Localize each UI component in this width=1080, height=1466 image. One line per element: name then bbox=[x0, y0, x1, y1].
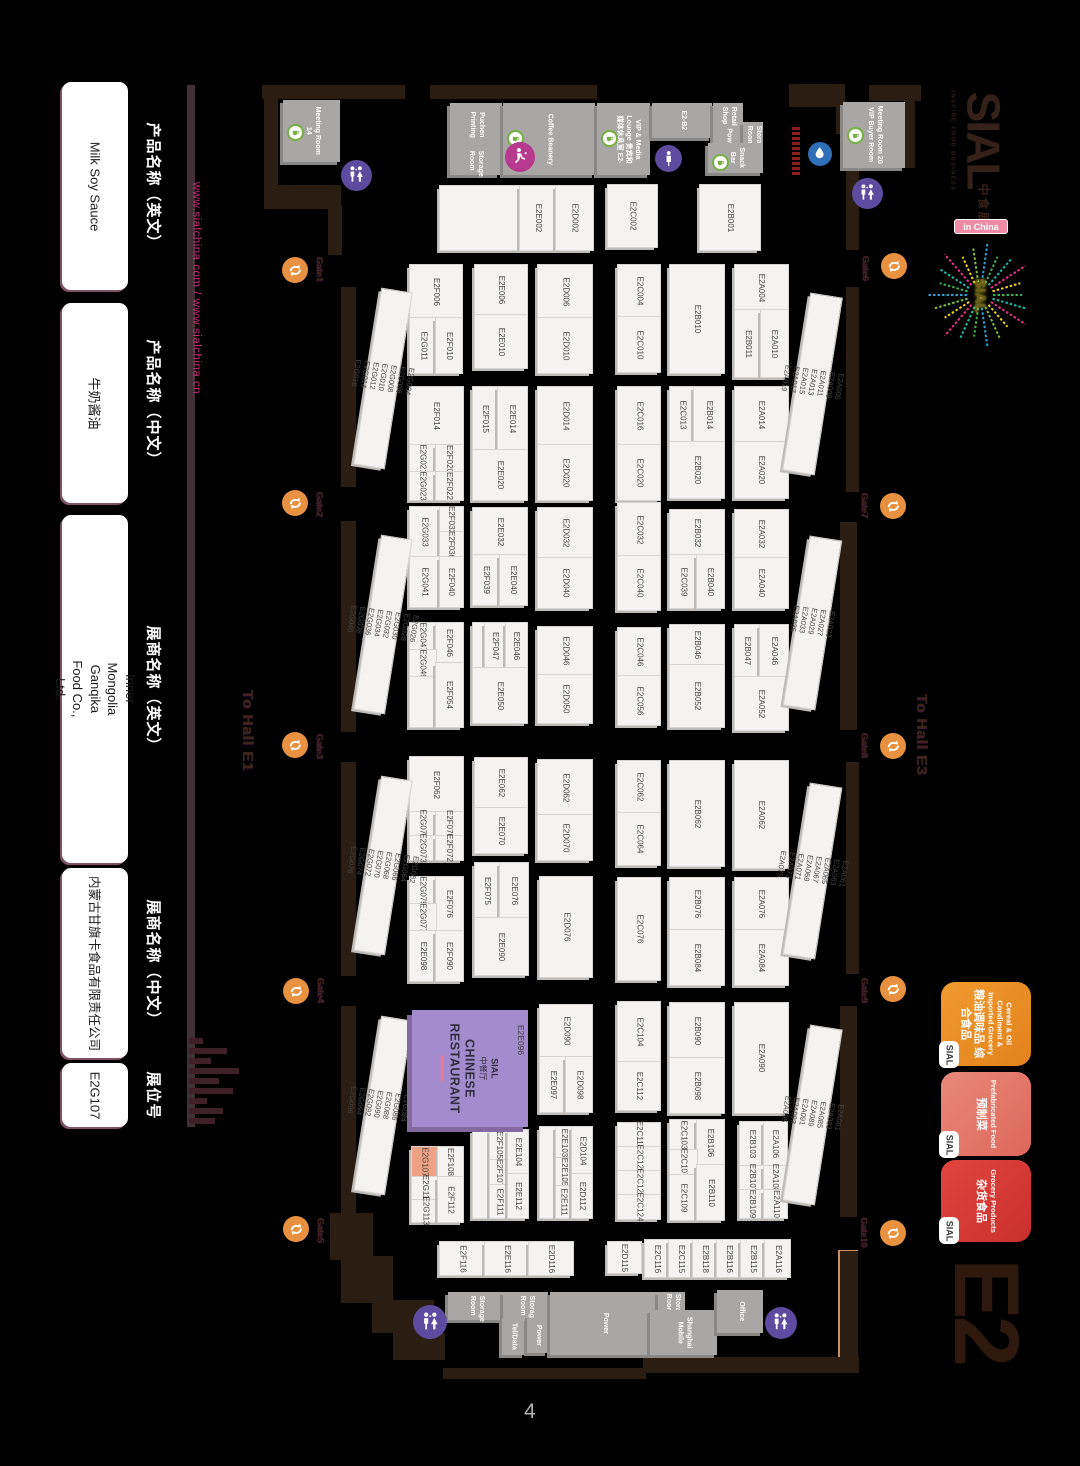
sial-cn-name: 中食展 bbox=[960, 188, 1008, 220]
badge-en-label: Prefabricated Food bbox=[989, 1080, 998, 1148]
room-storage-room: Storage Room bbox=[450, 147, 500, 175]
wall-segment bbox=[262, 85, 405, 99]
booth-unlabeled bbox=[440, 186, 520, 250]
booth-E2D062: E2D062 bbox=[538, 760, 592, 815]
to-hall-e3-sign: To Hall E3 bbox=[908, 672, 936, 797]
product-name-cn-card: 牛奶酱油 bbox=[62, 303, 128, 503]
sial-corner-tag: SIAL bbox=[939, 1041, 959, 1068]
booth-E2B098: E2B098 bbox=[670, 1058, 724, 1113]
amenity-icon bbox=[712, 154, 729, 171]
booth-E2B020: E2B020 bbox=[670, 442, 724, 498]
booth-E2D115: E2D115 bbox=[608, 1242, 641, 1273]
booth-E2D006: E2D006 bbox=[538, 265, 592, 318]
badge-en-label: Cereal & Oil Condiment & Imported Grocer… bbox=[987, 984, 1014, 1064]
booth-E2E032: E2E032 bbox=[473, 508, 527, 555]
gate-label-gate10: Gate10 bbox=[857, 1210, 871, 1254]
booth-E2F039: E2F039 bbox=[473, 555, 500, 605]
booth-E2C039: E2C039 bbox=[670, 555, 697, 608]
booth-E2D010: E2D010 bbox=[538, 318, 592, 373]
gate-icon bbox=[283, 1216, 309, 1242]
gate-label-gate3: Gate3 bbox=[312, 724, 326, 768]
booth-E2C116: E2C116 bbox=[645, 1240, 669, 1277]
room-power: Power bbox=[550, 1292, 658, 1355]
booth-E2G113: E2G113 bbox=[412, 1200, 438, 1222]
booth-strip: E2G082 E2G084 E2G086 E2G088 E2G090 E2G09… bbox=[354, 1017, 411, 1195]
booth-E2D098: E2D098 bbox=[566, 1057, 592, 1112]
wall-segment bbox=[905, 100, 915, 168]
room-tel/data: Tel/Data bbox=[502, 1318, 525, 1355]
booth-E2B010: E2B010 bbox=[670, 265, 724, 373]
wall-segment bbox=[328, 205, 342, 255]
booth-E2B040: E2B040 bbox=[697, 555, 724, 608]
booth-E2E090: E2E090 bbox=[475, 918, 528, 975]
room-shanghai-mobile: Shanghai Mobile bbox=[650, 1310, 717, 1355]
booth-number-card: E2G107 bbox=[62, 1063, 128, 1127]
badge-cn-label: 粮油调味品 综合食品 bbox=[958, 984, 984, 1064]
restroom-icon bbox=[765, 1307, 797, 1339]
booth-E2B109: E2B109 bbox=[740, 1190, 764, 1218]
booth-E2F107: E2F107 bbox=[490, 1160, 508, 1185]
gate-label-gate9: Gate9 bbox=[857, 968, 871, 1012]
restaurant-sial-label: SIAL bbox=[490, 1058, 500, 1079]
room-retail-shop: Retail Shop bbox=[713, 103, 743, 127]
booth-E2C107: E2C107 bbox=[670, 1150, 697, 1175]
booth-E2G011: E2G011 bbox=[410, 318, 436, 373]
booth-E2F006: E2F006 bbox=[410, 265, 462, 318]
booth-E2C118: E2C118 bbox=[618, 1123, 660, 1147]
booth-E2F022: E2F022 bbox=[436, 472, 463, 500]
restaurant-booth: E2E096 SIAL 中餐厅 CHINESE RESTAURANT bbox=[412, 1010, 528, 1127]
product-name-en-card: Milk Soy Sauce bbox=[62, 82, 128, 290]
room-storage-room: Storage Room bbox=[503, 1292, 548, 1318]
booth-E2C020: E2C020 bbox=[618, 445, 660, 500]
booth-E2E111: E2E111 bbox=[556, 1186, 572, 1218]
booth-E2A084: E2A084 bbox=[735, 930, 788, 985]
booth-E2D020: E2D020 bbox=[538, 445, 592, 500]
booth-E2C004: E2C004 bbox=[618, 265, 660, 317]
booth-E2C076: E2C076 bbox=[618, 878, 660, 980]
category-badge-grocery-products: Grocery Products 杂货食品 SIAL bbox=[941, 1160, 1031, 1242]
gate-icon bbox=[880, 1220, 906, 1246]
restroom-icon bbox=[852, 178, 883, 209]
booth-E2D076: E2D076 bbox=[540, 877, 592, 977]
booth-E2C120: E2C120 bbox=[618, 1147, 660, 1171]
booth-strip: E2G026 E2G028 E2G030 E2G032 E2G034 E2G03… bbox=[354, 536, 411, 714]
restaurant-name-line2: RESTAURANT bbox=[448, 1023, 462, 1113]
booth-E2F112: E2F112 bbox=[438, 1177, 463, 1222]
red-annotation-mark bbox=[792, 127, 800, 175]
pink-dash bbox=[441, 1056, 444, 1082]
booth-number-header: 展位号 bbox=[130, 1063, 178, 1127]
wall-segment bbox=[430, 85, 597, 99]
room-e2-b2: E2-B2 bbox=[652, 103, 712, 138]
booth-E2G077: E2G077 bbox=[410, 904, 436, 931]
booth-E2E103: E2E103 bbox=[556, 1127, 572, 1158]
booth-E2F108: E2F108 bbox=[438, 1147, 463, 1177]
booth-E2A032: E2A032 bbox=[735, 510, 788, 558]
to-hall-e1-sign: To Hall E1 bbox=[233, 668, 263, 793]
booth-E2A076: E2A076 bbox=[735, 878, 788, 930]
gate-label-gate5: Gate5 bbox=[313, 1208, 327, 1252]
booth-E2E006: E2E006 bbox=[475, 265, 527, 315]
restroom-icon bbox=[413, 1305, 447, 1339]
wall-segment bbox=[643, 1357, 859, 1373]
booth-E2F020: E2F020 bbox=[436, 445, 463, 472]
booth-E2E105: E2E105 bbox=[556, 1158, 572, 1186]
wall-segment bbox=[443, 1368, 646, 1379]
website-url: www.sialchina.com / www.sialchina.cn bbox=[186, 88, 206, 488]
booth-E2G041: E2G041 bbox=[410, 557, 440, 607]
wall-segment bbox=[264, 99, 278, 195]
booth-E2F032: E2F032 bbox=[440, 507, 463, 532]
gate-label-gate1: Gate1 bbox=[312, 247, 326, 291]
gate-icon bbox=[880, 733, 906, 759]
booth-E2F090: E2F090 bbox=[436, 931, 463, 981]
booth-E2A108: E2A108 bbox=[764, 1166, 787, 1190]
page-number: 4 bbox=[524, 1400, 536, 1424]
booth-E2C115: E2C115 bbox=[669, 1240, 693, 1277]
booth-E2F111: E2F111 bbox=[490, 1185, 508, 1218]
exhibitor-name-en-card: Inner Mongolia Ganqika Food Co., Ltd. bbox=[62, 515, 128, 863]
booth-E2D050: E2D050 bbox=[538, 675, 592, 723]
amenity-icon bbox=[601, 130, 618, 147]
booth-E2G023: E2G023 bbox=[410, 472, 436, 500]
room-storage-room: Storage Room bbox=[658, 1292, 685, 1310]
room-snack-bar: Snack Bar bbox=[708, 143, 763, 173]
booth-E2E104: E2E104 bbox=[508, 1130, 528, 1174]
wall-segment bbox=[341, 1256, 393, 1303]
booth-E2C016: E2C016 bbox=[618, 387, 660, 445]
booth-E2C064: E2C064 bbox=[618, 813, 660, 865]
booth-E2B011: E2B011 bbox=[735, 310, 761, 377]
gate-icon bbox=[880, 493, 906, 519]
gate-icon bbox=[880, 976, 906, 1002]
booth-E2E097: E2E097 bbox=[540, 1057, 566, 1112]
booth-E2D014: E2D014 bbox=[538, 387, 592, 445]
booth-E2F105: E2F105 bbox=[490, 1130, 508, 1160]
amenity-icon bbox=[287, 124, 304, 141]
booth-E2C104: E2C104 bbox=[618, 1002, 660, 1062]
hall-e2-sign: E2 bbox=[936, 1250, 1034, 1370]
product-name-en-header: 产品名称（英文） bbox=[130, 82, 178, 290]
room-meeting-room-14: Meeting Room 14 bbox=[283, 100, 340, 162]
booth-E2C040: E2C040 bbox=[618, 556, 660, 610]
booth-E2F047: E2F047 bbox=[485, 623, 506, 668]
booth-E2A106: E2A106 bbox=[764, 1122, 787, 1166]
booth-E2B032: E2B032 bbox=[670, 510, 724, 555]
booth-E2C103: E2C103 bbox=[670, 1120, 697, 1150]
wall-segment bbox=[840, 522, 857, 730]
booth-E2F040: E2F040 bbox=[440, 557, 463, 607]
gate-label-gate7: Gate7 bbox=[857, 483, 871, 527]
booth-E2B084: E2B084 bbox=[670, 930, 724, 985]
booth-E2B076: E2B076 bbox=[670, 878, 724, 930]
floorplan-page: E2E002E2D002E2C002E2B001E2F006E2G011E2F0… bbox=[0, 0, 1080, 1466]
in-china-badge: in China bbox=[954, 219, 1008, 234]
water-icon bbox=[808, 142, 832, 166]
booth-strip: E2A023 E2A027 E2A029 E2A033 E2A035 bbox=[784, 537, 841, 710]
booth-E2E112: E2E112 bbox=[508, 1174, 528, 1218]
booth-E2F062: E2F062 bbox=[410, 757, 463, 812]
booth-E2A004: E2A004 bbox=[735, 265, 788, 310]
booth-E2A046: E2A046 bbox=[760, 625, 788, 677]
category-badge-prefabricated: Prefabricated Food 预制菜 SIAL bbox=[941, 1072, 1031, 1156]
booth-E2F010: E2F010 bbox=[436, 318, 462, 373]
booth-E2C032: E2C032 bbox=[618, 503, 660, 556]
booth-E2F076: E2F076 bbox=[436, 877, 463, 931]
booth-E2F070: E2F070 bbox=[436, 812, 463, 836]
booth-E2A090: E2A090 bbox=[735, 1003, 788, 1113]
booth-E2F014: E2F014 bbox=[410, 387, 463, 445]
booth-E2C046: E2C046 bbox=[618, 628, 660, 676]
booth-E2B107: E2B107 bbox=[740, 1166, 764, 1190]
sial-corner-tag: SIAL bbox=[939, 1131, 959, 1158]
booth-E2D090: E2D090 bbox=[540, 1005, 592, 1057]
booth-E2F075: E2F075 bbox=[475, 863, 500, 918]
booth-E2E002: E2E002 bbox=[520, 186, 556, 250]
room-power: Power bbox=[527, 1318, 548, 1353]
room-meeting-room-20-vip-buyer-room: Meeting Room 20 VIP Buyer Room bbox=[843, 102, 905, 168]
room-puchen-printing: Puchen Printing bbox=[450, 103, 502, 147]
booth-E2D032: E2D032 bbox=[538, 508, 592, 558]
booth-E2C010: E2C010 bbox=[618, 317, 660, 372]
booth-E2B014: E2B014 bbox=[694, 387, 724, 442]
booth-E2D002: E2D002 bbox=[556, 186, 593, 250]
booth-E2F015: E2F015 bbox=[473, 387, 498, 450]
gate-icon bbox=[282, 490, 308, 516]
wall-segment bbox=[869, 85, 921, 101]
restaurant-name-line1: CHINESE bbox=[463, 1039, 477, 1098]
booth-E2E010: E2E010 bbox=[475, 315, 527, 368]
skyline-graphic bbox=[189, 1036, 253, 1126]
booth-E2C013: E2C013 bbox=[670, 387, 694, 442]
booth-E2D070: E2D070 bbox=[538, 815, 592, 860]
booth-E2F072: E2F072 bbox=[436, 836, 463, 860]
booth-E2B062: E2B062 bbox=[670, 761, 724, 866]
room-storage-room: Storage Room bbox=[448, 1292, 503, 1320]
booth-E2G107: E2G107 bbox=[412, 1147, 438, 1177]
booth-E2B090: E2B090 bbox=[670, 1003, 724, 1058]
booth-E2G049: E2G049 bbox=[410, 650, 436, 677]
room-office: Office bbox=[717, 1290, 763, 1333]
booth-E2A020: E2A020 bbox=[735, 442, 788, 498]
wall-segment bbox=[838, 1250, 858, 1357]
booth-E2E020: E2E020 bbox=[473, 450, 527, 500]
amenity-icon bbox=[847, 127, 864, 144]
booth-E2A052: E2A052 bbox=[735, 677, 788, 730]
product-name-cn-header: 产品名称（中文） bbox=[130, 303, 178, 503]
booth-E2C002: E2C002 bbox=[608, 185, 657, 247]
sial-corner-tag: SIAL bbox=[939, 1217, 959, 1244]
booth-E2B001: E2B001 bbox=[700, 185, 760, 250]
booth-E2A116: E2A116 bbox=[765, 1240, 790, 1277]
booth-E2B118: E2B118 bbox=[693, 1240, 717, 1277]
person-icon bbox=[655, 145, 682, 172]
booth-strip: E2A081 E2A083 E2A085 E2A089 E2A091 E2A09… bbox=[783, 1026, 841, 1205]
booth-unlabeled bbox=[473, 1130, 490, 1218]
badge-cn-label: 预制菜 bbox=[974, 1098, 987, 1131]
booth-E2B110: E2B110 bbox=[697, 1165, 724, 1220]
restaurant-cn-label: 中餐厅 bbox=[478, 1057, 489, 1081]
gate-icon bbox=[881, 253, 907, 279]
booth-E2E098: E2E098 bbox=[410, 931, 436, 981]
badge-en-label: Grocery Products bbox=[989, 1169, 998, 1232]
booth-E2F116: E2F116 bbox=[440, 1242, 485, 1275]
booth-E2E040: E2E040 bbox=[500, 555, 527, 605]
booth-E2B103: E2B103 bbox=[740, 1122, 764, 1166]
booth-E2C056: E2C056 bbox=[618, 676, 660, 725]
booth-E2F054: E2F054 bbox=[436, 663, 463, 727]
room-power: Power bbox=[713, 127, 742, 143]
booth-E2D112: E2D112 bbox=[572, 1174, 592, 1218]
booth-E2D040: E2D040 bbox=[538, 558, 592, 608]
gate-label-gate6: Gate6 bbox=[858, 246, 872, 290]
wall-segment bbox=[330, 1213, 373, 1260]
gate-label-gate8: Gate8 bbox=[857, 723, 871, 767]
category-badge-grocery-imported: Cereal & Oil Condiment & Imported Grocer… bbox=[941, 982, 1031, 1066]
booth-E2E062: E2E062 bbox=[475, 758, 527, 808]
gate-label-gate4: Gate4 bbox=[313, 968, 327, 1012]
sial-logo: SIAL bbox=[956, 84, 1010, 196]
restroom-icon bbox=[341, 160, 372, 191]
booth-E2D104: E2D104 bbox=[572, 1127, 592, 1174]
booth-E2C122: E2C122 bbox=[618, 1171, 660, 1195]
booth-E2A040: E2A040 bbox=[735, 558, 788, 608]
gate-icon bbox=[283, 978, 309, 1004]
booth-E2B046: E2B046 bbox=[670, 625, 724, 665]
starburst-sial-text: SIAL bbox=[962, 272, 998, 318]
booth-E2C062: E2C062 bbox=[618, 761, 660, 813]
booth-E2E014: E2E014 bbox=[498, 387, 527, 450]
booth-E2E046: E2E046 bbox=[506, 623, 527, 668]
booth-E2E070: E2E070 bbox=[475, 808, 527, 853]
booth-E2B047: E2B047 bbox=[735, 625, 760, 677]
booth-E2D046: E2D046 bbox=[538, 627, 592, 675]
booth-E2B106: E2B106 bbox=[697, 1120, 724, 1165]
booth-E2F036: E2F036 bbox=[440, 532, 463, 557]
exhibitor-name-en-header: 展商名称（英文） bbox=[130, 515, 178, 863]
booth-E2E116: E2E116 bbox=[485, 1242, 529, 1275]
gate-label-gate2: Gate2 bbox=[312, 482, 326, 526]
booth-unlabeled bbox=[540, 1127, 556, 1218]
booth-unlabeled bbox=[410, 677, 436, 727]
booth-E2F046: E2F046 bbox=[436, 623, 463, 663]
booth-E2B115: E2B115 bbox=[741, 1240, 765, 1277]
booth-E2C124: E2C124 bbox=[618, 1195, 660, 1219]
booth-strip: E2A061 E2A063 E2A065 E2A067 E2A069 E2A07… bbox=[784, 784, 842, 959]
booth-E2B052: E2B052 bbox=[670, 665, 724, 727]
wall-segment bbox=[846, 287, 859, 492]
booth-E2G021: E2G021 bbox=[410, 445, 436, 472]
booth-strip: E2G062 E2G064 E2G066 E2G068 E2G070 E2G07… bbox=[354, 777, 411, 955]
exhibitor-name-cn-header: 展商名称（中文） bbox=[130, 868, 178, 1058]
exhibitor-name-cn-card: 内蒙古甘旗卡食品有限责任公司 bbox=[62, 868, 128, 1058]
badge-cn-label: 杂货食品 bbox=[974, 1179, 987, 1223]
booth-E2C109: E2C109 bbox=[670, 1175, 697, 1220]
booth-E2E076: E2E076 bbox=[500, 863, 528, 918]
booth-E2D116: E2D116 bbox=[529, 1242, 573, 1275]
booth-strip: E2G004 E2G006 E2G008 E2G010 E2G012 E2G01… bbox=[354, 289, 411, 469]
booth-unlabeled bbox=[473, 623, 485, 668]
booth-strip: E2A005 E2A009 E2A011 E2A013 E2A015 E2A01… bbox=[783, 294, 841, 475]
booth-E2B116: E2B116 bbox=[717, 1240, 741, 1277]
wall-segment bbox=[789, 84, 839, 107]
accessible-icon bbox=[505, 142, 535, 172]
booth-E2G033: E2G033 bbox=[410, 507, 440, 557]
booth-E2A014: E2A014 bbox=[735, 387, 788, 442]
gate-icon bbox=[282, 257, 308, 283]
booth-E2E050: E2E050 bbox=[473, 668, 527, 723]
gate-icon bbox=[282, 732, 308, 758]
booth-E2C112: E2C112 bbox=[618, 1062, 660, 1110]
room-vip-&-media-lounge-贵宾和媒体休息室-e2-m18: VIP & Media Lounge 贵宾和媒体休息室 E2-M18 bbox=[597, 103, 650, 175]
